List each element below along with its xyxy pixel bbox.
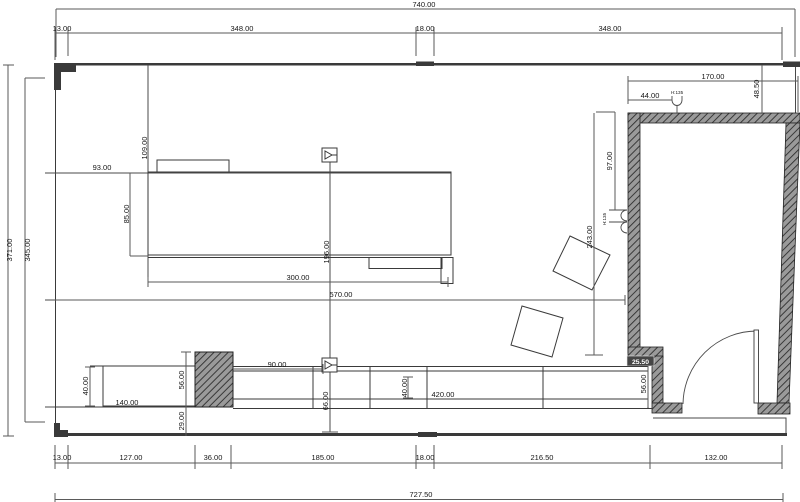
hatched-column: [195, 352, 233, 407]
seat-square-1: [553, 236, 610, 290]
dim-label-72750: 727.50: [410, 490, 433, 499]
dim-label-bot-36: 36.00: [204, 453, 223, 462]
dim-label-93: 93.00: [93, 163, 112, 172]
long-counter-group: [233, 366, 653, 409]
corner-column-top-left: [54, 63, 76, 90]
dim-label-h135-top: H:135: [671, 90, 684, 95]
dim-label-196: 196.00: [322, 241, 331, 264]
desk-monitor: [157, 160, 229, 172]
dim-label-85: 85.00: [122, 205, 131, 224]
dim-label-25-50: 25.50: [632, 359, 649, 366]
dim-label-109: 109.00: [140, 137, 149, 160]
dim-label-740: 740.00: [413, 0, 436, 9]
seat-square-2: [511, 306, 563, 357]
room-wall-top: [628, 113, 800, 123]
dim-label-345: 345.00: [23, 239, 32, 262]
dim-label-bot-18: 18.00: [416, 453, 435, 462]
dim-label-371: 371.00: [5, 239, 14, 262]
dim-label-top-13: 13.00: [53, 24, 72, 33]
floor-plan-canvas: 25.50: [0, 0, 800, 502]
door-leaf: [754, 330, 759, 403]
entrance-recess: [653, 418, 786, 433]
dim-label-56-room: 56.00: [639, 375, 648, 394]
dim-label-bot-21650: 216.50: [531, 453, 554, 462]
dim-label-66: 66.00: [321, 392, 330, 411]
dim-label-140: 140.00: [116, 398, 139, 407]
wall-marker-top-mid: [416, 62, 434, 67]
desk-return: [441, 258, 453, 284]
desk-tray: [369, 258, 442, 269]
dim-label-top-18: 18.00: [416, 24, 435, 33]
dim-label-44: 44.00: [641, 91, 660, 100]
dim-label-top-348a: 348.00: [231, 24, 254, 33]
room-wall-right: [777, 123, 800, 403]
dim-label-bot-132: 132.00: [705, 453, 728, 462]
desk: [148, 172, 451, 255]
dim-label-97: 97.00: [605, 152, 614, 171]
interior-lines: [55, 65, 451, 432]
room-walls: 25.50: [627, 113, 800, 414]
room-door-jamb-right-foot: [758, 403, 790, 414]
fixture-h135-top: [672, 96, 682, 113]
room-door-jamb-left-foot: [652, 403, 682, 413]
dim-label-56-col: 56.00: [177, 371, 186, 390]
fixture-h135-side: [609, 210, 627, 233]
dim-label-h135-side: H:135: [602, 212, 607, 225]
dim-label-bot-127: 127.00: [120, 453, 143, 462]
dim-label-300: 300.00: [287, 273, 310, 282]
outlet-symbol-top: [322, 148, 337, 162]
dim-label-40-mid: 40.00: [400, 379, 409, 398]
dim-label-90: 90.00: [268, 360, 287, 369]
rotated-squares: [511, 236, 610, 357]
room-wall-left: [628, 113, 640, 353]
dim-label-243: 243.00: [585, 226, 594, 249]
dim-label-570: 570.00: [330, 290, 353, 299]
dimension-labels: 740.00 13.00 348.00 18.00 348.00 371.00 …: [5, 0, 761, 499]
door: [653, 330, 786, 433]
dim-label-40-left: 40.00: [81, 377, 90, 396]
outlet-symbol-bottom: [322, 358, 337, 372]
dim-label-4850: 48.50: [752, 80, 761, 99]
dim-label-bot-13: 13.00: [53, 453, 72, 462]
dim-label-top-348b: 348.00: [599, 24, 622, 33]
dim-label-bot-185: 185.00: [312, 453, 335, 462]
dim-label-420: 420.00: [432, 390, 455, 399]
desk-group: [148, 160, 453, 284]
corner-column-bottom-left: [54, 423, 68, 437]
dim-label-170: 170.00: [702, 72, 725, 81]
door-swing-arc: [683, 331, 757, 404]
wall-marker-top-right: [783, 62, 800, 68]
dim-label-29: 29.00: [177, 412, 186, 431]
wall-marker-bottom-mid: [418, 432, 437, 437]
floor-plan-drawing: 25.50: [0, 0, 800, 502]
